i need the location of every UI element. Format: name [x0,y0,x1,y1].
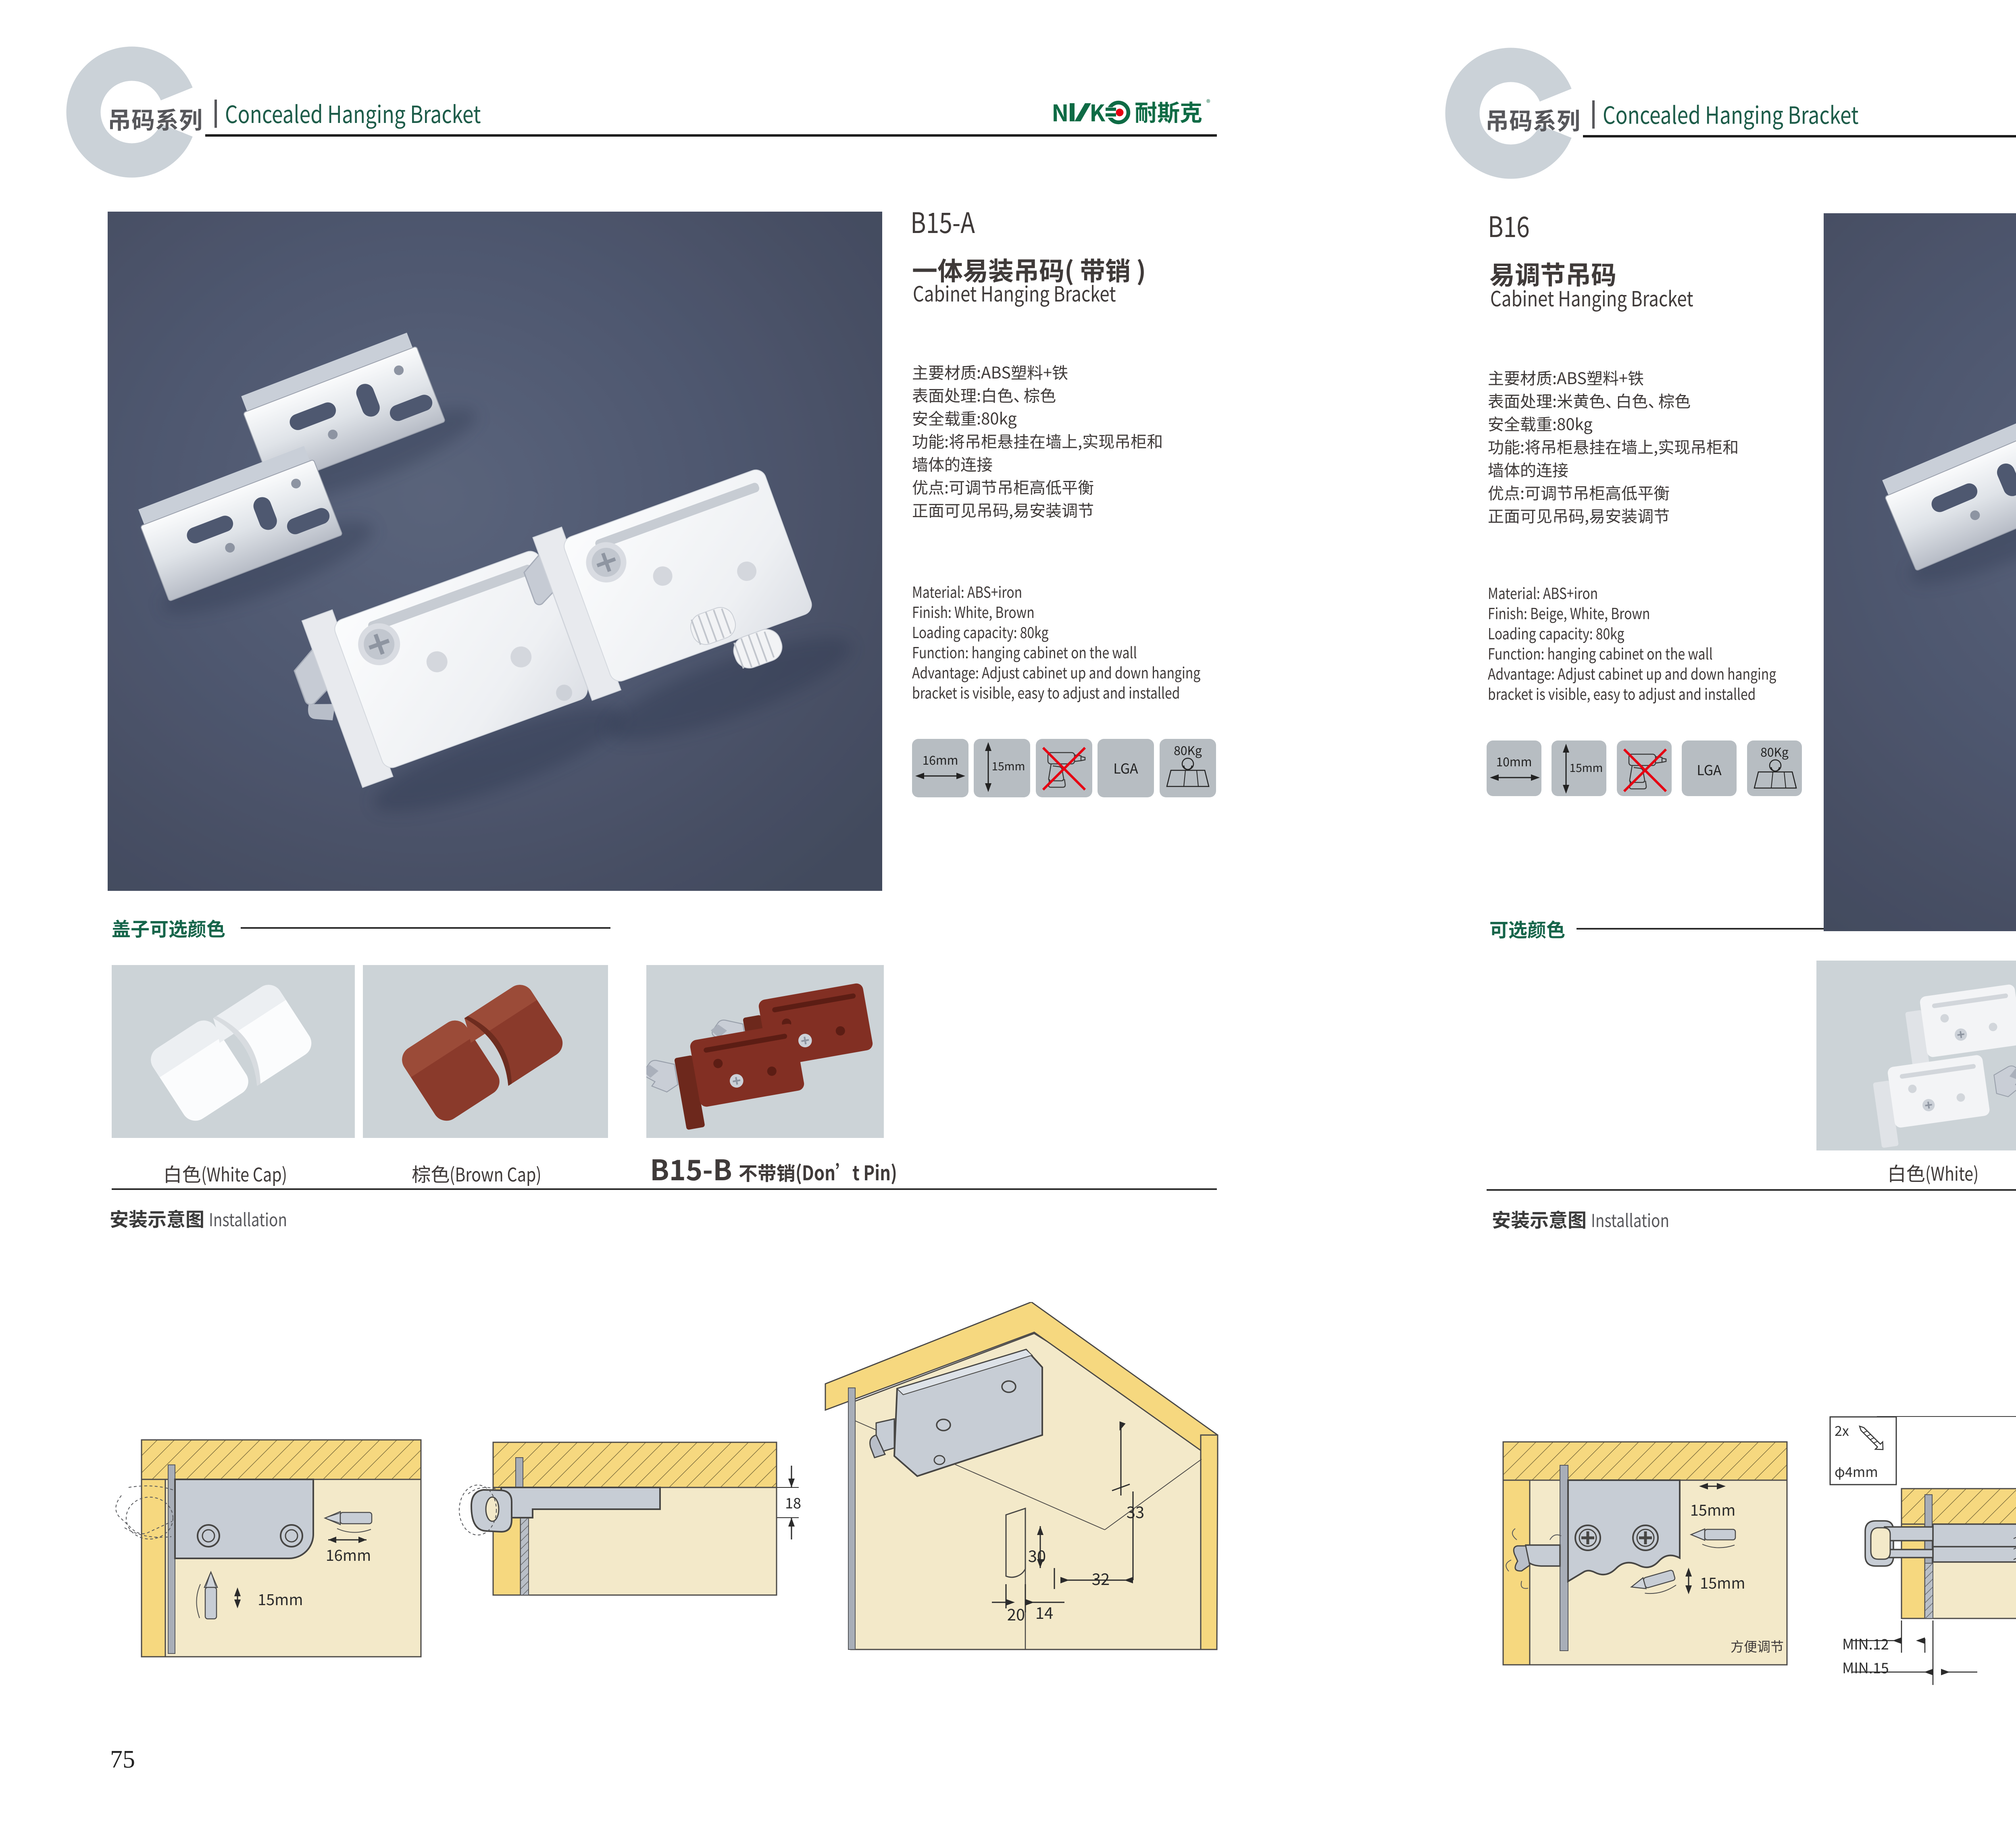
svg-text:33: 33 [1127,1500,1144,1523]
svg-text:MIN.12: MIN.12 [1842,1633,1889,1654]
svg-text:15mm: 15mm [1570,759,1603,776]
svg-text:15mm: 15mm [1690,1498,1736,1520]
svg-text:20: 20 [1007,1602,1025,1625]
svg-text:®: ® [1206,97,1210,108]
svg-text:16mm: 16mm [923,751,958,768]
svg-text:15mm: 15mm [258,1587,303,1610]
svg-text:14: 14 [1035,1600,1053,1624]
svg-text:耐斯克: 耐斯克 [1135,97,1202,128]
svg-text:10mm: 10mm [1496,752,1532,770]
svg-text:2x: 2x [1835,1420,1849,1440]
svg-text:18: 18 [785,1492,801,1513]
svg-text:N: N [1052,97,1068,128]
svg-text:LGA: LGA [1113,758,1138,778]
svg-text:K: K [1089,97,1106,128]
svg-text:LGA: LGA [1697,759,1722,779]
svg-text:15mm: 15mm [1700,1571,1745,1593]
svg-text:方便调节: 方便调节 [1731,1636,1784,1656]
svg-text:16mm: 16mm [326,1543,371,1565]
svg-text:30: 30 [1028,1543,1046,1567]
svg-text:80Kg: 80Kg [1174,741,1202,759]
svg-text:15mm: 15mm [992,758,1025,774]
svg-text:32: 32 [1092,1566,1110,1590]
svg-text:MIN.15: MIN.15 [1842,1657,1889,1678]
svg-text:80Kg: 80Kg [1760,743,1789,760]
